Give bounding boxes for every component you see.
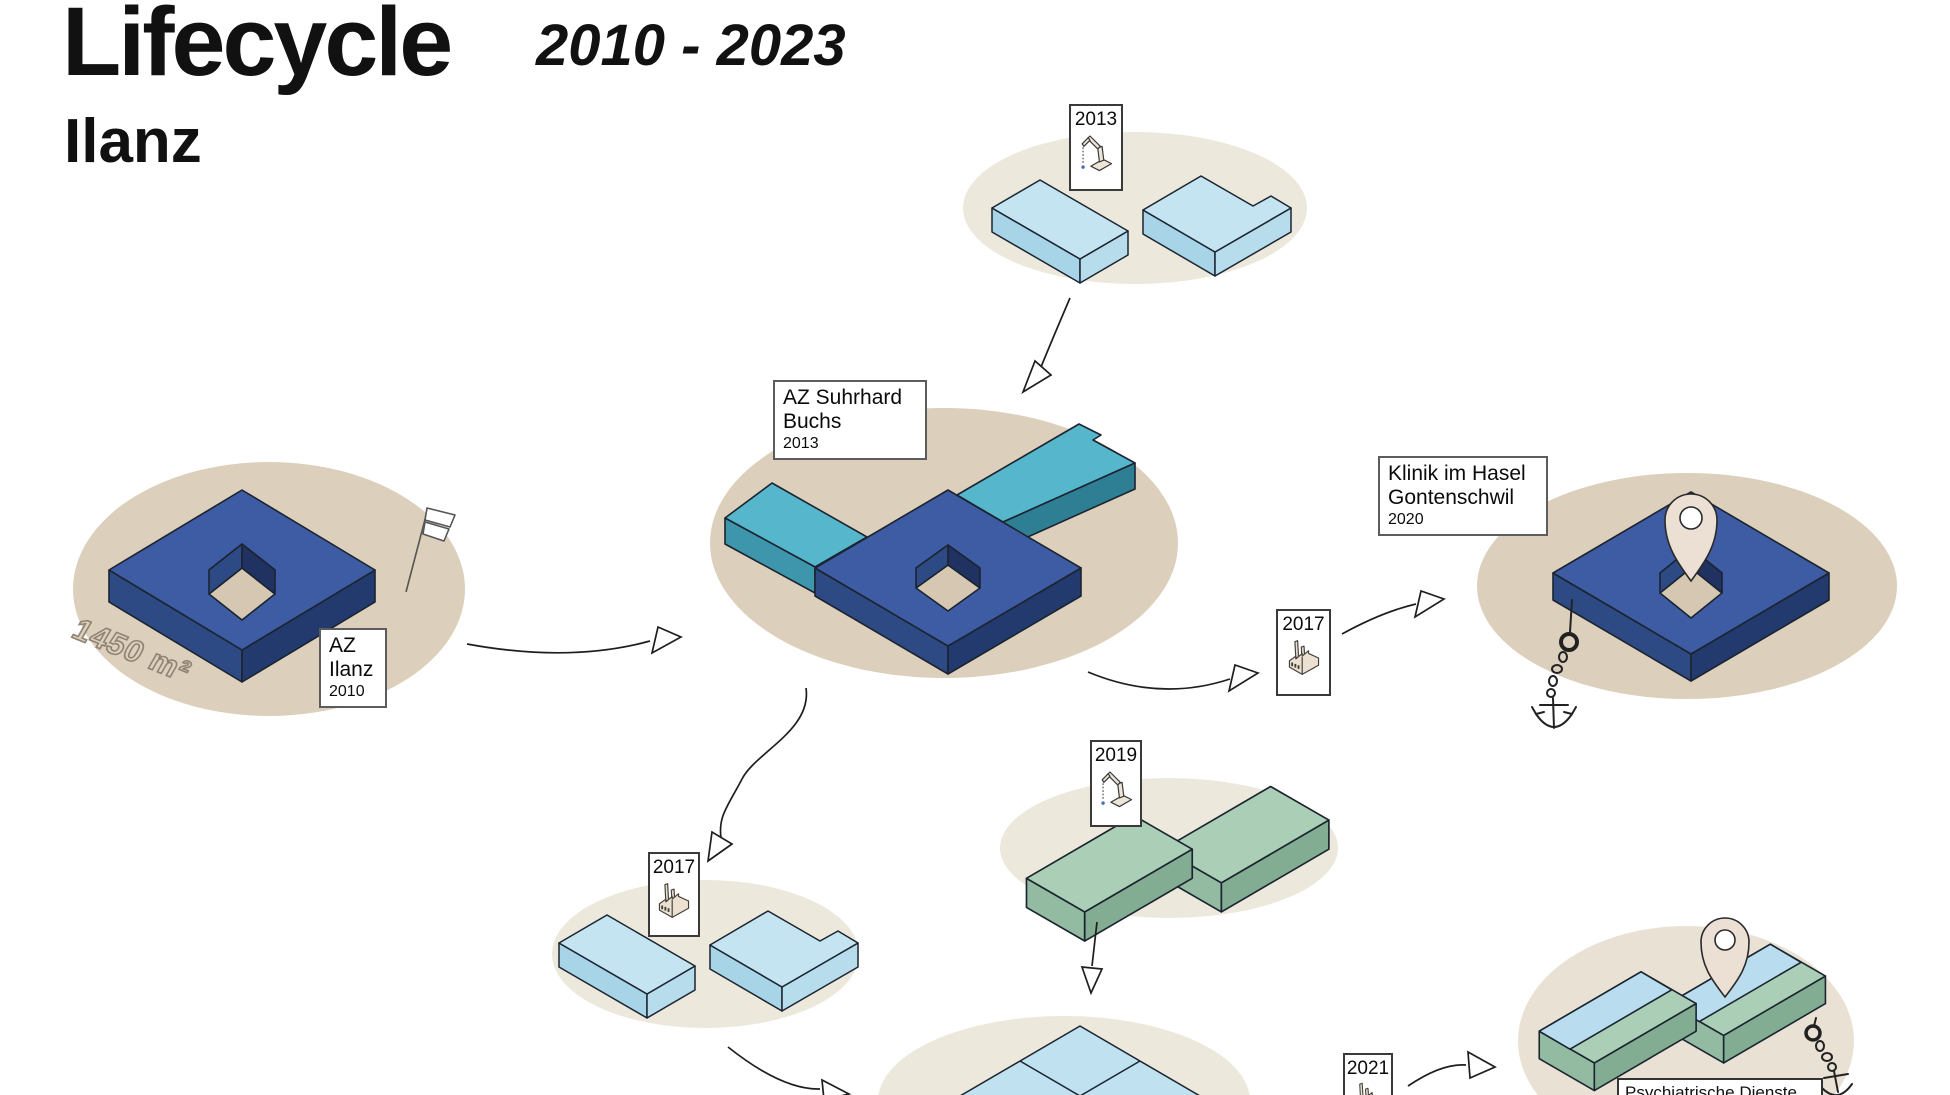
page-title: Lifecycle <box>62 0 450 98</box>
factory-icon <box>654 879 694 923</box>
event-tag-2017-left: 2017 <box>648 852 700 937</box>
label-az-ilanz: AZ Ilanz 2010 <box>319 628 387 708</box>
arrow-2021-to-psych <box>1408 1065 1466 1086</box>
event-tag-2017-right: 2017 <box>1276 609 1331 696</box>
factory-icon <box>1284 636 1324 680</box>
event-tag-2013: 2013 <box>1069 104 1123 191</box>
factory-icon <box>1348 1080 1388 1095</box>
arrow-bottomleft-right <box>728 1047 820 1089</box>
anchor-icon <box>1526 598 1606 738</box>
crane-icon <box>1077 131 1115 179</box>
crane-icon <box>1097 767 1135 815</box>
event-tag-2019: 2019 <box>1090 740 1142 827</box>
label-az-suhrhard: AZ Suhrhard Buchs 2013 <box>773 380 927 460</box>
lifecycle-diagram: Lifecycle 2010 - 2023 Ilanz 1450 m² <box>0 0 1950 1095</box>
flag-icon <box>392 498 464 598</box>
label-psychiatrische-dienste: Psychiatrische Dienste <box>1617 1078 1823 1095</box>
building-bottom-center <box>950 1020 1290 1095</box>
building-slabs-2017 <box>552 885 872 1020</box>
arrow-ilanz-to-suhrhard <box>467 641 650 653</box>
arrow-2017-to-klinik <box>1342 604 1416 634</box>
event-tag-2021: 2021 <box>1343 1053 1393 1095</box>
page-subtitle: Ilanz <box>64 106 202 177</box>
building-slabs-2013 <box>985 150 1305 285</box>
arrow-2013-to-suhrhard <box>1041 298 1070 367</box>
arrow-suhrhard-to-2017-left <box>720 688 806 838</box>
building-green-2019 <box>1022 782 1342 947</box>
page-title-period: 2010 - 2023 <box>536 12 846 79</box>
label-klinik-im-hasel: Klinik im Hasel Gontenschwil 2020 <box>1378 456 1548 536</box>
